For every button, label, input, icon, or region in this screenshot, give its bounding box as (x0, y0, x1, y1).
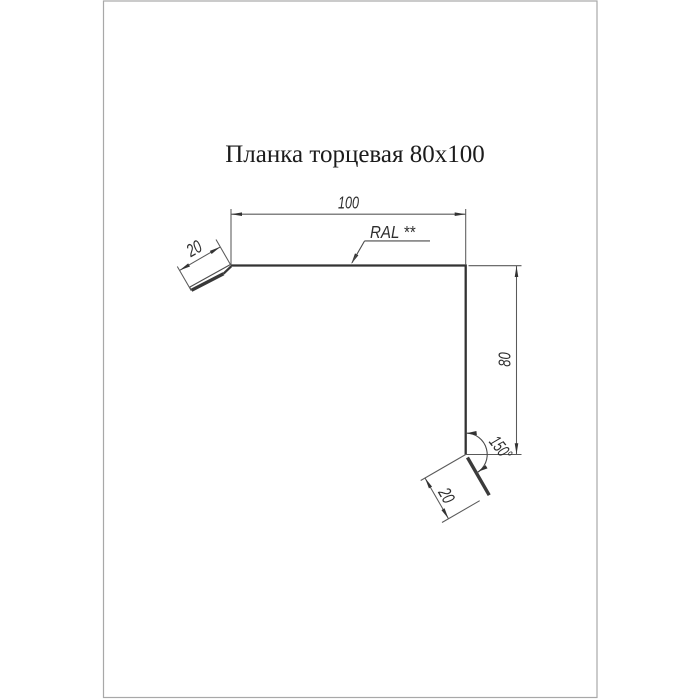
svg-text:100: 100 (338, 194, 359, 214)
svg-text:RAL **: RAL ** (370, 222, 416, 243)
svg-text:80: 80 (496, 352, 516, 367)
svg-text:Планка торцевая 80х100: Планка торцевая 80х100 (225, 141, 485, 168)
